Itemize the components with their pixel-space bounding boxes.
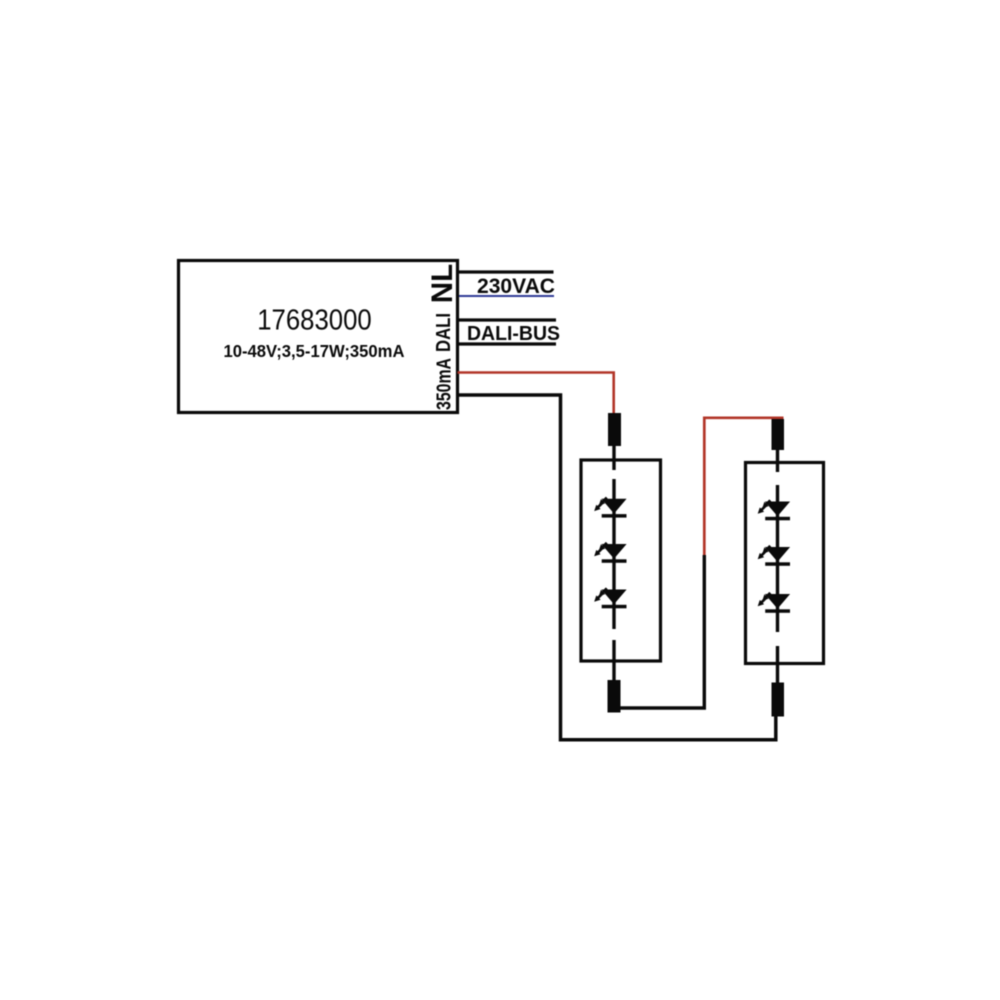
svg-text:230VAC: 230VAC (477, 275, 555, 298)
svg-text:350mA: 350mA (434, 358, 456, 410)
svg-text:17683000: 17683000 (257, 305, 372, 337)
svg-text:10-48V;3,5-17W;350mA: 10-48V;3,5-17W;350mA (224, 341, 405, 361)
svg-text:NL: NL (426, 264, 459, 304)
svg-text:DALI-BUS: DALI-BUS (467, 323, 560, 345)
svg-text:DALI: DALI (433, 313, 455, 352)
